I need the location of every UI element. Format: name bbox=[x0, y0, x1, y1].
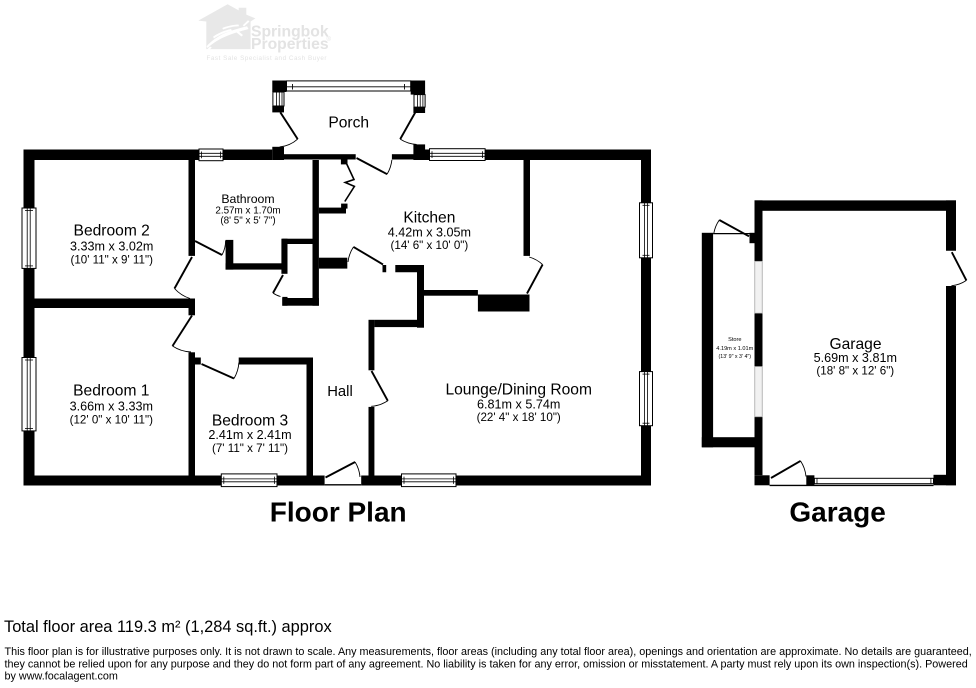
svg-text:Hall: Hall bbox=[327, 384, 353, 400]
svg-text:Garage: Garage bbox=[789, 497, 886, 528]
svg-text:by www.focalagent.com: by www.focalagent.com bbox=[5, 671, 118, 683]
svg-text:2.41m x 2.41m: 2.41m x 2.41m bbox=[208, 428, 291, 442]
svg-text:(12' 0" x 10' 11"): (12' 0" x 10' 11") bbox=[70, 414, 153, 427]
svg-text:®: ® bbox=[327, 36, 332, 43]
svg-text:Porch: Porch bbox=[328, 115, 369, 132]
svg-text:Bedroom 3: Bedroom 3 bbox=[212, 413, 288, 430]
svg-text:Bathroom: Bathroom bbox=[221, 192, 274, 206]
svg-text:Fast Sale Specialist and Cash: Fast Sale Specialist and Cash Buyer bbox=[207, 55, 327, 62]
svg-text:Lounge/Dining Room: Lounge/Dining Room bbox=[445, 381, 592, 398]
svg-text:5.69m x 3.81m: 5.69m x 3.81m bbox=[814, 351, 897, 365]
svg-text:4.19m x 1.01m: 4.19m x 1.01m bbox=[716, 346, 753, 352]
svg-text:6.81m x 5.74m: 6.81m x 5.74m bbox=[477, 397, 560, 411]
svg-text:Bedroom 1: Bedroom 1 bbox=[73, 383, 149, 400]
svg-text:This floor plan is for illustr: This floor plan is for illustrative purp… bbox=[5, 646, 972, 658]
svg-text:(10' 11" x 9' 11"): (10' 11" x 9' 11") bbox=[70, 253, 153, 266]
svg-text:they cannot be relied upon for: they cannot be relied upon for any purpo… bbox=[5, 658, 968, 670]
svg-text:3.66m x 3.33m: 3.66m x 3.33m bbox=[70, 400, 153, 414]
svg-text:Properties: Properties bbox=[251, 36, 329, 53]
svg-text:Store: Store bbox=[728, 337, 741, 343]
svg-text:Kitchen: Kitchen bbox=[403, 210, 455, 227]
svg-text:Total floor area 119.3 m² (1,2: Total floor area 119.3 m² (1,284 sq.ft.)… bbox=[4, 618, 332, 636]
svg-text:(8' 5" x 5' 7"): (8' 5" x 5' 7") bbox=[220, 215, 275, 226]
svg-text:3.33m x 3.02m: 3.33m x 3.02m bbox=[70, 240, 153, 254]
svg-text:Floor Plan: Floor Plan bbox=[270, 497, 407, 528]
svg-text:(7' 11" x 7' 11"): (7' 11" x 7' 11") bbox=[212, 442, 288, 455]
svg-text:4.42m x 3.05m: 4.42m x 3.05m bbox=[388, 225, 471, 239]
svg-text:(13' 9" x 3' 4"): (13' 9" x 3' 4") bbox=[719, 354, 752, 360]
svg-text:Bedroom 2: Bedroom 2 bbox=[74, 222, 150, 239]
svg-text:(14' 6" x 10' 0"): (14' 6" x 10' 0") bbox=[391, 239, 469, 252]
svg-text:(18' 8" x 12' 6"): (18' 8" x 12' 6") bbox=[816, 364, 894, 377]
svg-text:(22' 4" x 18' 10"): (22' 4" x 18' 10") bbox=[477, 411, 561, 424]
